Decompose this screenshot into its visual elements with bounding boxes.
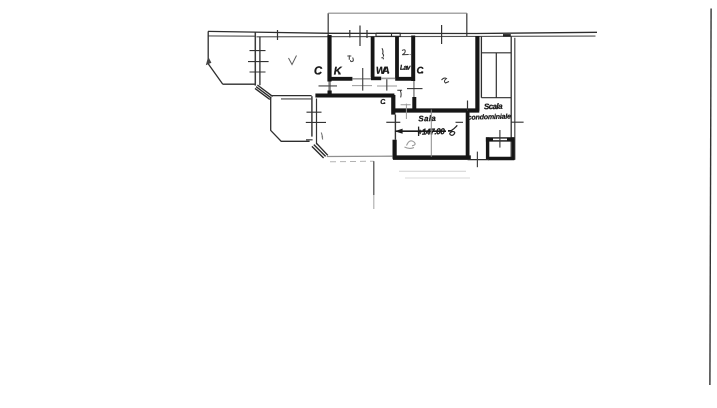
svg-text:C.: C. (314, 65, 323, 77)
svg-text:K.: K. (333, 65, 342, 77)
svg-text:condominiale: condominiale (468, 114, 512, 122)
svg-text:W.A.: W.A. (376, 65, 390, 76)
svg-text:Sala: Sala (418, 114, 436, 123)
svg-text:Scala: Scala (484, 102, 503, 112)
svg-text:C.: C. (380, 99, 386, 106)
svg-text:C.: C. (416, 65, 424, 76)
svg-text:Lav: Lav (400, 64, 412, 71)
